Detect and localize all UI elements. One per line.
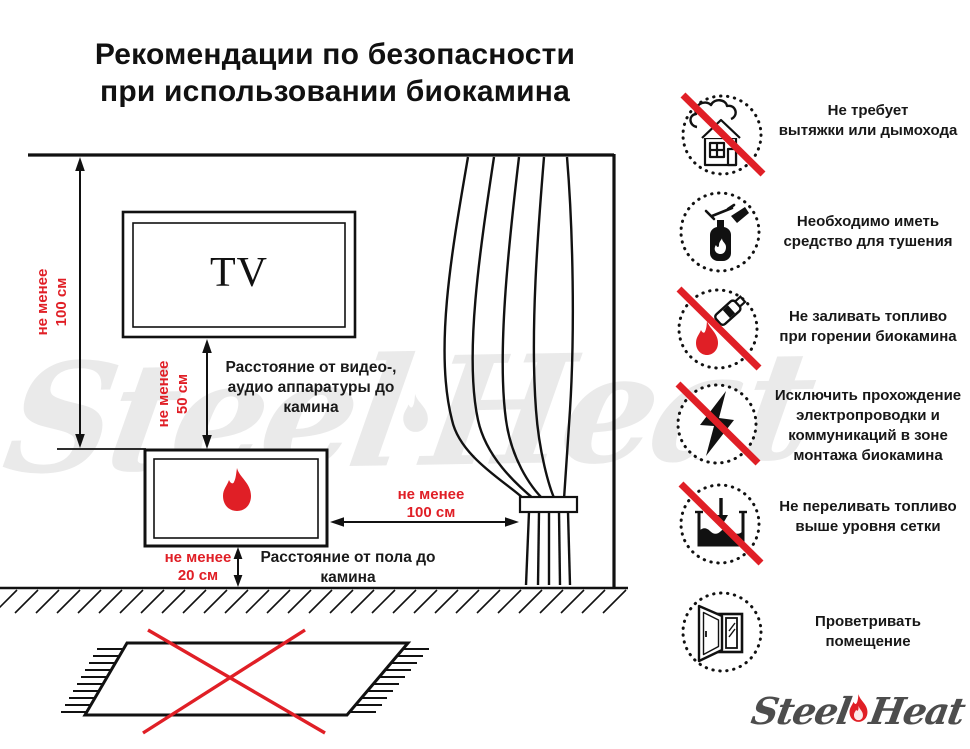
fireplace: [145, 450, 327, 546]
recommendation-text: Не переливать топливо выше уровня сетки: [770, 497, 966, 537]
recommendation-text: Необходимо иметь средство для тушения: [770, 212, 966, 252]
logo-heat: Heat: [867, 693, 967, 730]
curtain-distance-label: не менее 100 см: [371, 486, 491, 522]
wall-distance-arrow: [75, 157, 85, 448]
floor-distance-value-label: не менее 20 см: [152, 549, 244, 585]
tv-label: TV: [210, 249, 268, 297]
av-distance-value-label: не менее 50 см: [154, 361, 192, 428]
curtain-tie-band: [520, 497, 577, 512]
no-overfill-icon: [668, 470, 772, 574]
recommendation-text: Не требует вытяжки или дымохода: [770, 101, 966, 141]
no-electrical-wiring-icon: [665, 370, 769, 474]
recommendation-text: Исключить прохождение электропроводки и …: [770, 386, 966, 466]
recommendation-text: Проветривать помещение: [770, 612, 966, 652]
ventilate-icon: [670, 578, 774, 682]
no-refueling-while-burning-icon: [666, 275, 770, 379]
page-title: Рекомендации по безопасности при использ…: [35, 36, 635, 110]
steelheat-logo: Steel Heat: [752, 682, 964, 740]
recommendation-text: Не заливать топливо при горении биокамин…: [770, 307, 966, 347]
fireplace-flame-icon: [223, 468, 251, 511]
logo-steel: Steel: [749, 693, 853, 730]
floor-hatching: [0, 590, 626, 613]
no-chimney-icon: [670, 81, 774, 185]
carpet-cross-icon: [143, 630, 325, 733]
floor-distance-caption: Расстояние от пола до камина: [250, 548, 446, 588]
av-distance-caption: Расстояние от видео-, аудио аппаратуры д…: [211, 358, 411, 418]
wall-distance-label: не менее 100 см: [33, 269, 71, 336]
extinguisher-icon: [668, 178, 772, 282]
carpet-fringe-left: [61, 649, 123, 712]
crossed-carpet: [61, 630, 429, 733]
carpet-fringe-right: [350, 649, 429, 712]
